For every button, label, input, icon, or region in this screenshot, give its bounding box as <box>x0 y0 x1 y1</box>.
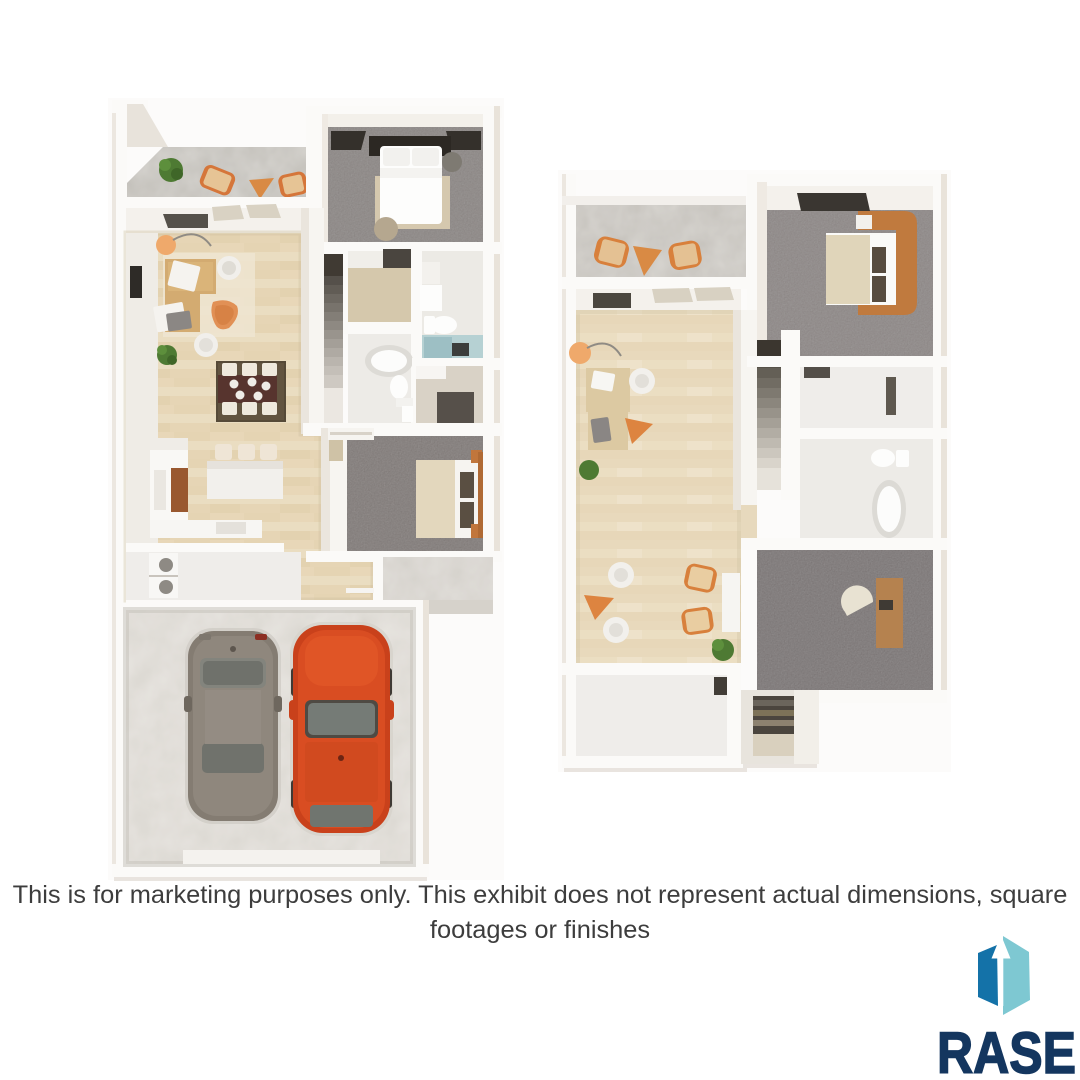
svg-text:footages or finishes: footages or finishes <box>430 916 650 944</box>
svg-text:This is for marketing purposes: This is for marketing purposes only. Thi… <box>13 881 1068 909</box>
svg-text:RASE: RASE <box>937 1021 1076 1080</box>
